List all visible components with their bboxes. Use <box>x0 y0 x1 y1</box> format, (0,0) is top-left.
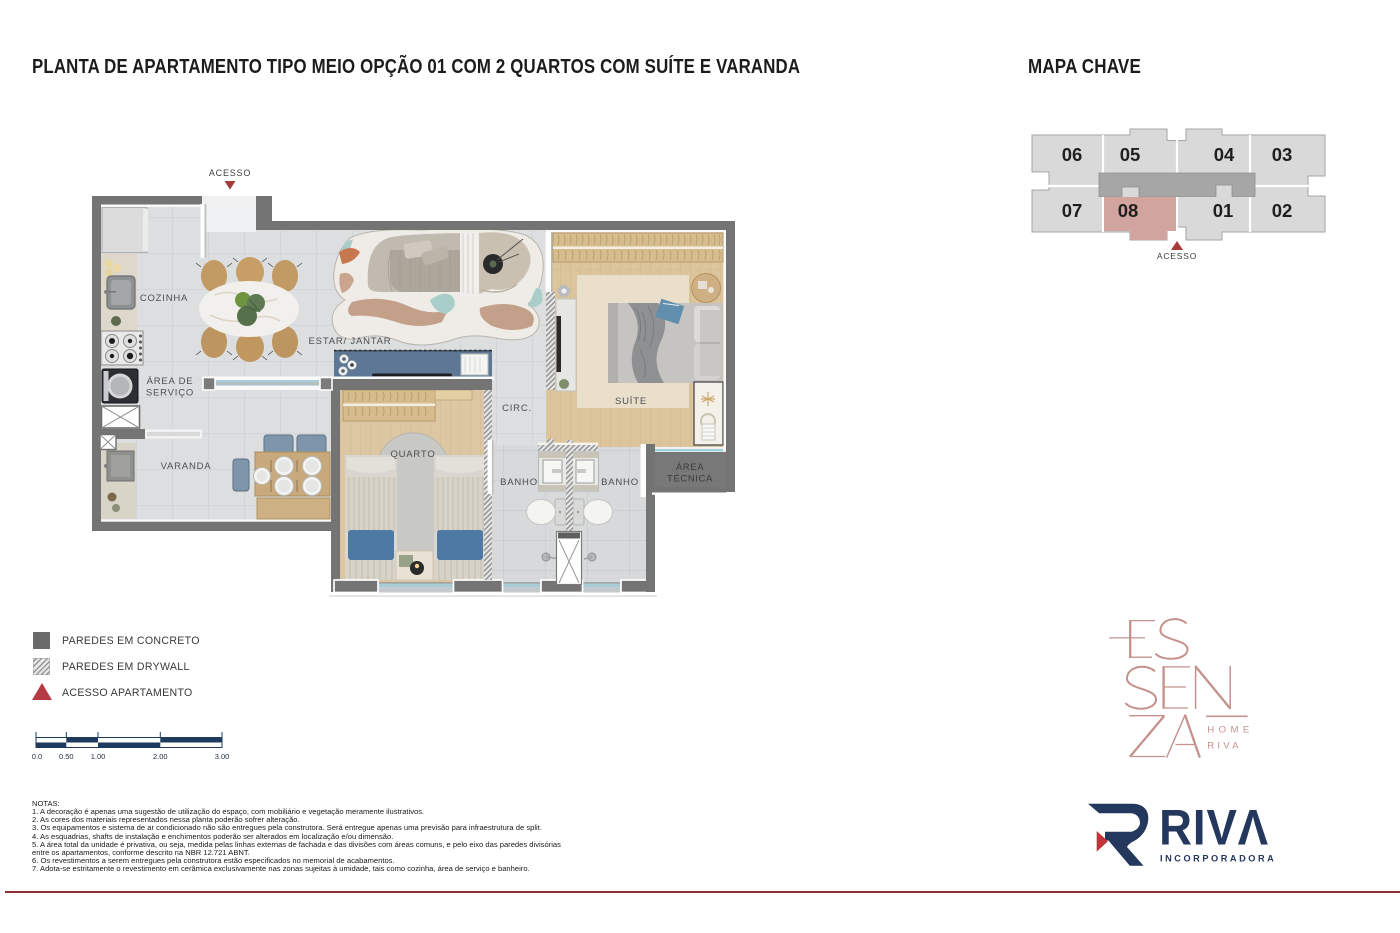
svg-text:07: 07 <box>1062 200 1083 221</box>
svg-text:05: 05 <box>1120 144 1141 165</box>
svg-text:08: 08 <box>1118 200 1139 221</box>
svg-text:TÉCNICA: TÉCNICA <box>667 474 713 485</box>
svg-text:0.0: 0.0 <box>32 752 42 761</box>
svg-text:ÁREA: ÁREA <box>676 462 704 473</box>
svg-text:HOME: HOME <box>1207 725 1253 736</box>
svg-text:BANHO: BANHO <box>500 477 538 488</box>
svg-text:RIVA: RIVA <box>1207 740 1241 751</box>
svg-text:BANHO: BANHO <box>601 477 639 488</box>
svg-text:0.50: 0.50 <box>59 752 74 761</box>
svg-text:02: 02 <box>1272 200 1293 221</box>
svg-text:ACESSO: ACESSO <box>1157 251 1197 261</box>
svg-text:06: 06 <box>1062 144 1083 165</box>
svg-text:ÁREA DE: ÁREA DE <box>147 376 194 387</box>
svg-text:ESTAR/ JANTAR: ESTAR/ JANTAR <box>309 336 392 347</box>
svg-text:SERVIÇO: SERVIÇO <box>146 388 194 399</box>
svg-text:ACESSO: ACESSO <box>209 168 251 178</box>
svg-text:04: 04 <box>1214 144 1235 165</box>
svg-text:03: 03 <box>1272 144 1293 165</box>
svg-text:SUÍTE: SUÍTE <box>615 396 647 407</box>
svg-text:3.00: 3.00 <box>215 752 230 761</box>
svg-text:2.00: 2.00 <box>153 752 168 761</box>
svg-text:VARANDA: VARANDA <box>161 461 212 472</box>
svg-text:RIVΛ: RIVΛ <box>1159 801 1269 856</box>
svg-text:COZINHA: COZINHA <box>140 293 188 304</box>
svg-text:CIRC.: CIRC. <box>502 403 532 414</box>
svg-text:QUARTO: QUARTO <box>390 449 435 460</box>
svg-text:1.00: 1.00 <box>91 752 106 761</box>
svg-text:INCORPORADORA: INCORPORADORA <box>1160 854 1276 864</box>
svg-text:01: 01 <box>1213 200 1234 221</box>
